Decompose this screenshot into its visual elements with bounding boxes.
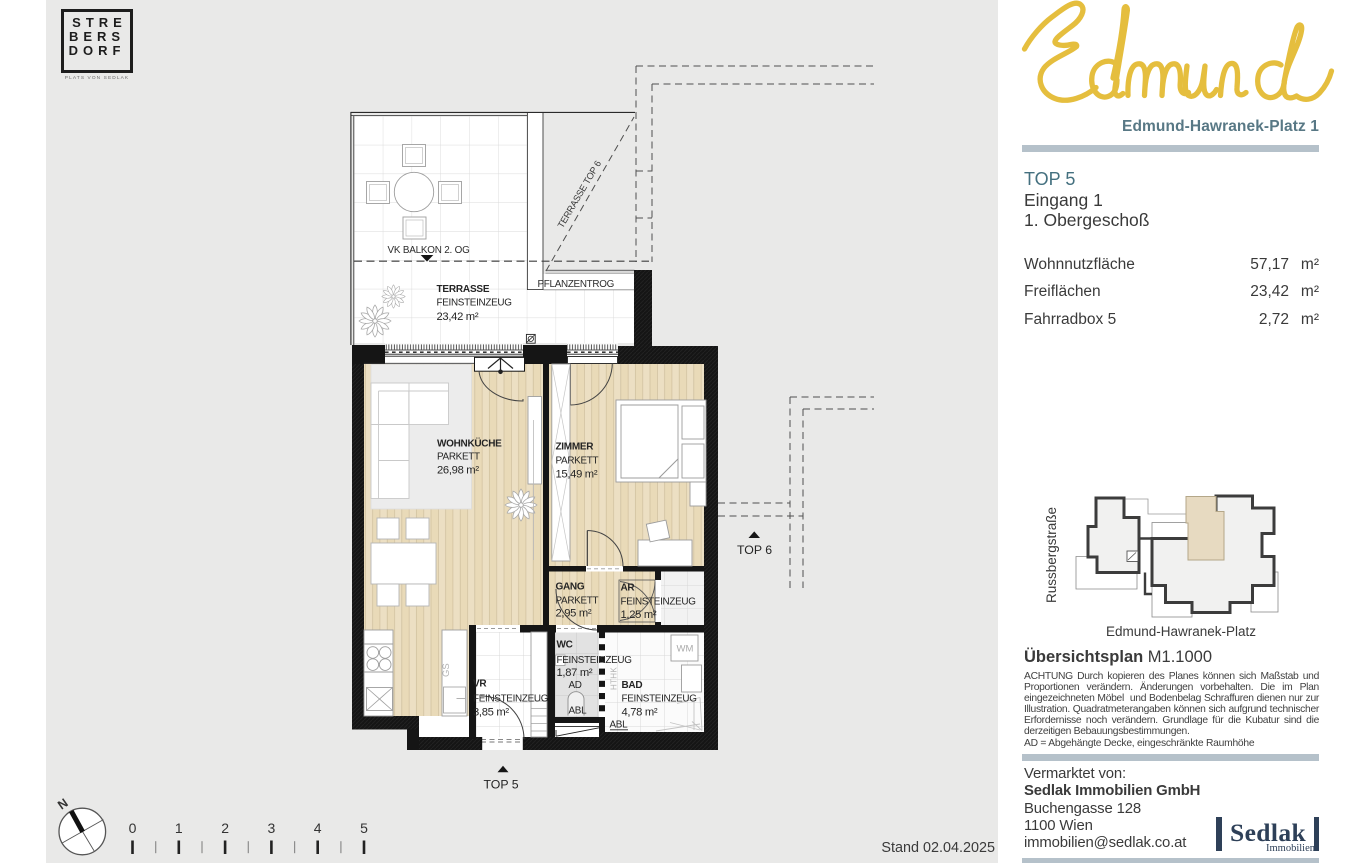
svg-text:VK BALKON 2. OG: VK BALKON 2. OG xyxy=(388,245,470,256)
svg-text:4,78 m²: 4,78 m² xyxy=(622,707,658,719)
svg-text:WM: WM xyxy=(677,644,694,655)
svg-text:TERRASSE TOP 6: TERRASSE TOP 6 xyxy=(556,159,603,230)
svg-text:23,42 m²: 23,42 m² xyxy=(437,311,479,323)
svg-text:FEINSTEINZEUG: FEINSTEINZEUG xyxy=(437,298,512,309)
svg-text:GS: GS xyxy=(441,663,452,677)
svg-text:2,95 m²: 2,95 m² xyxy=(556,608,592,620)
svg-text:TOP 6: TOP 6 xyxy=(737,543,772,557)
svg-text:15,49 m²: 15,49 m² xyxy=(556,469,598,481)
svg-text:Stand 02.04.2025: Stand 02.04.2025 xyxy=(881,840,995,856)
svg-text:AD: AD xyxy=(569,680,582,691)
svg-text:ABL: ABL xyxy=(569,706,588,717)
svg-text:GANG: GANG xyxy=(556,582,585,593)
svg-text:3,85 m²: 3,85 m² xyxy=(473,707,509,719)
svg-text:TERRASSE: TERRASSE xyxy=(437,284,490,295)
svg-text:5: 5 xyxy=(360,820,368,836)
svg-text:VR: VR xyxy=(473,679,487,690)
svg-text:PFLANZENTROG: PFLANZENTROG xyxy=(538,279,615,290)
svg-text:PARKETT: PARKETT xyxy=(437,451,480,462)
svg-text:1: 1 xyxy=(175,820,183,836)
svg-text:TOP 5: TOP 5 xyxy=(484,778,519,792)
svg-text:FEINSTEINZEUG: FEINSTEINZEUG xyxy=(621,597,696,608)
svg-text:HTHK: HTHK xyxy=(610,667,619,690)
svg-text:WOHNKÜCHE: WOHNKÜCHE xyxy=(437,436,502,449)
svg-text:WC: WC xyxy=(557,640,573,651)
svg-text:0: 0 xyxy=(129,820,137,836)
svg-text:FEINSTEINZEUG: FEINSTEINZEUG xyxy=(622,694,697,705)
svg-text:26,98 m²: 26,98 m² xyxy=(437,464,479,476)
svg-text:AR: AR xyxy=(621,583,636,594)
svg-text:1,25 m²: 1,25 m² xyxy=(621,609,657,621)
svg-text:PARKETT: PARKETT xyxy=(556,596,599,607)
svg-text:ABL: ABL xyxy=(610,720,629,731)
svg-text:Edmund-Hawranek-Platz: Edmund-Hawranek-Platz xyxy=(1106,624,1256,639)
svg-text:4: 4 xyxy=(314,820,322,836)
svg-text:3: 3 xyxy=(268,820,276,836)
svg-text:Russbergstraße: Russbergstraße xyxy=(1044,507,1059,603)
svg-text:BAD: BAD xyxy=(622,680,643,691)
svg-text:ZIMMER: ZIMMER xyxy=(556,442,595,453)
svg-text:FEINSTEINZEUG: FEINSTEINZEUG xyxy=(473,694,548,705)
svg-text:N: N xyxy=(55,796,70,813)
svg-text:2: 2 xyxy=(221,820,229,836)
svg-text:PARKETT: PARKETT xyxy=(556,456,599,467)
svg-text:FEINSTEINZEUG: FEINSTEINZEUG xyxy=(557,655,632,666)
svg-text:1,87 m²: 1,87 m² xyxy=(557,667,593,679)
